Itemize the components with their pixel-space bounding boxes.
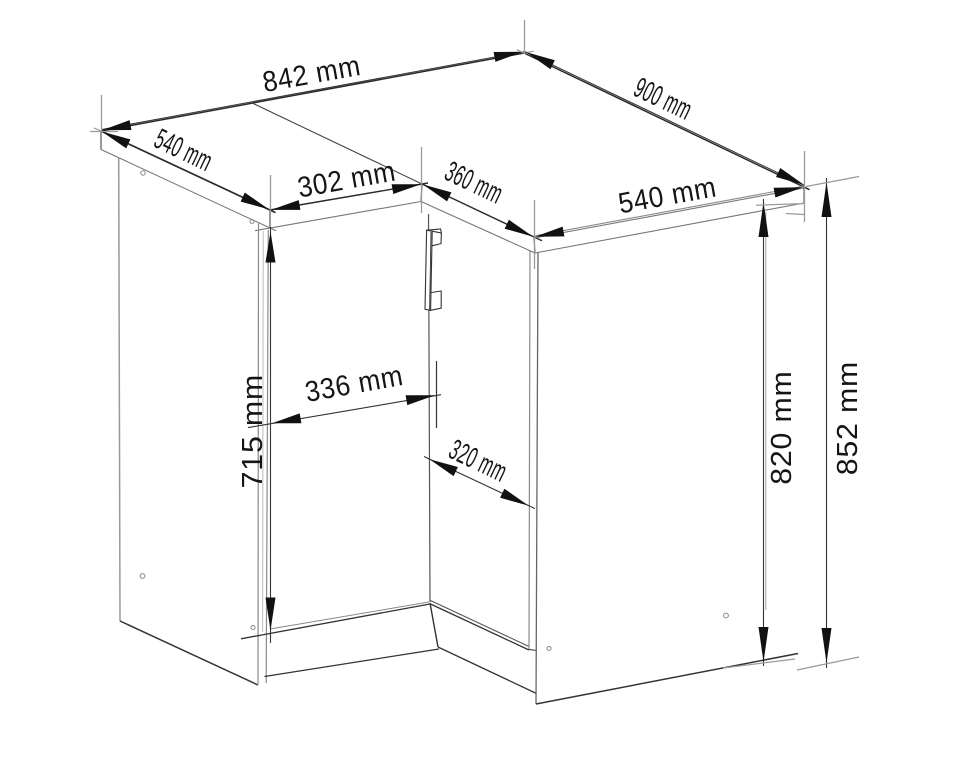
svg-text:715 mm: 715 mm [236,374,268,488]
svg-text:852 mm: 852 mm [831,361,863,475]
svg-text:820 mm: 820 mm [766,370,798,484]
